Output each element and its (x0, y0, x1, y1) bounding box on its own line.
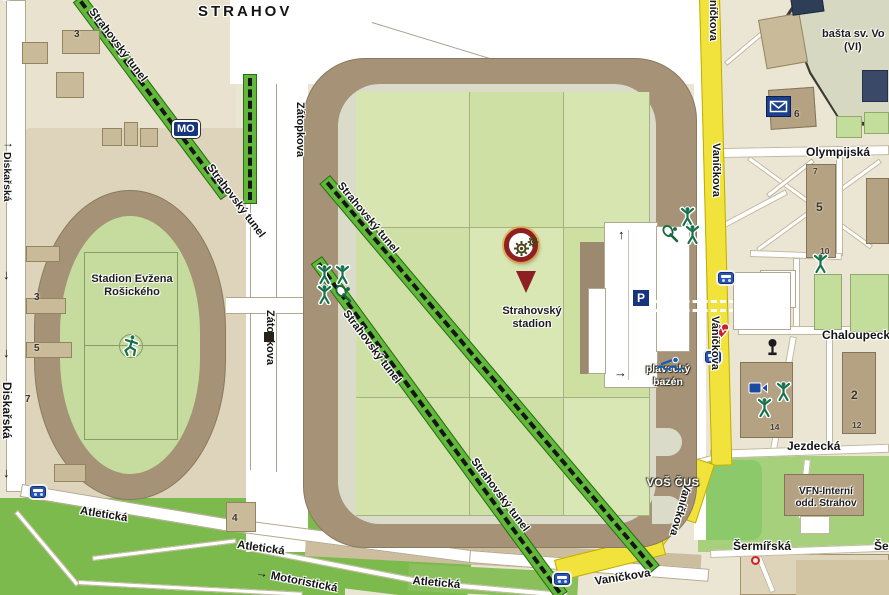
map-canvas[interactable]: MO P ↑ → → ↓ ↓ ↓ → STRAHOV Strahovský tu… (0, 0, 889, 595)
east-band-notch-1 (652, 428, 682, 456)
building-nw-4 (102, 128, 122, 146)
oneway-arrow-diskarska-top: → (2, 137, 14, 149)
zatopkova-border-e (276, 84, 277, 472)
gymnast-icon-3[interactable] (316, 284, 333, 305)
building-bottom-right (796, 560, 889, 595)
lot-green-2 (864, 112, 889, 134)
building-nw-2 (22, 42, 48, 64)
gymnast-icon-1[interactable] (316, 264, 333, 285)
number-7-east: 7 (813, 166, 818, 176)
pin-tip (516, 271, 536, 293)
tennis-icon-2[interactable] (661, 224, 680, 243)
chaloupeckeho-label: Chaloupecke (822, 328, 889, 342)
infield-r1c2 (470, 92, 564, 228)
number-3-west: 3 (34, 292, 40, 303)
vos-cus-label: VOŠ ČUS (643, 477, 703, 489)
oneway-arrow-diskarska-3: ↓ (3, 466, 10, 479)
number-4-corner: 4 (232, 513, 238, 524)
bastion-label: bašta sv. Vo (VI) (822, 28, 889, 54)
number-2: 2 (851, 388, 858, 402)
building-nw-3 (56, 72, 84, 98)
building-nw-1 (62, 30, 100, 54)
zatopkova-label-top: Zátopkova (294, 102, 306, 157)
road-l-vfn (800, 516, 830, 534)
gear-icon-small (527, 235, 539, 253)
route-point-icon[interactable] (751, 556, 760, 565)
number-5-west: 5 (34, 343, 40, 354)
building-e-1 (866, 178, 889, 244)
number-5-east: 5 (816, 200, 823, 214)
west-annex-2 (26, 298, 66, 314)
east-stand-wing-l (588, 288, 606, 374)
right-arrow-icon: → (614, 366, 627, 379)
swimmer-icon[interactable] (657, 354, 684, 373)
west-annex-4 (54, 464, 86, 482)
camera-icon[interactable] (748, 381, 769, 395)
landmark-icon[interactable] (264, 332, 274, 342)
vfn-label: VFN-Interní odd. Strahov (792, 486, 860, 510)
building-nw-6 (140, 128, 158, 147)
vfn-line1: VFN-Interní (799, 486, 853, 497)
road-v-3 (826, 336, 833, 454)
building-white-station (733, 272, 791, 330)
bazen-line2: bazén (640, 376, 696, 388)
building-corner-4 (226, 502, 256, 532)
infield-r1c1 (356, 92, 470, 228)
lot-chaloupeckeho-1 (814, 274, 842, 330)
bus-stop-icon-vanickova-b[interactable] (554, 573, 570, 585)
vanickova-label-2: Vaníčkova (710, 143, 722, 197)
tunnel-portal-sign: MO (172, 120, 200, 138)
strahov-line1: Strahovský (502, 305, 561, 317)
number-14: 14 (770, 422, 779, 432)
tennis-icon-1[interactable] (334, 284, 353, 303)
oneway-arrow-motoristicka: → (255, 566, 269, 580)
vanickova-label-3: Vaníčkova (709, 316, 721, 370)
building-ne-leaning (758, 13, 808, 70)
olympijska-label: Olympijská (806, 145, 870, 159)
infield-r2c1 (356, 228, 470, 398)
diskarska-label-mid: Diskařská (1, 152, 13, 202)
post-office-icon[interactable] (766, 96, 791, 117)
gymnast-icon-8[interactable] (756, 397, 773, 418)
gymnast-icon-2[interactable] (334, 264, 351, 285)
rosicky-stadium-label: Stadion Evžena Rošického (80, 273, 184, 299)
number-7-west: 7 (25, 394, 31, 405)
lot-chaloupeckeho-2 (850, 274, 889, 332)
oneway-arrow-diskarska-1: ↓ (3, 268, 10, 281)
east-stand-line (628, 230, 629, 380)
diskarska-label-low: Diskařská (0, 382, 14, 439)
oneway-arrow-diskarska-2: ↓ (3, 346, 10, 359)
up-arrow-icon: ↑ (618, 228, 625, 241)
strahov-line2: stadion (512, 318, 551, 330)
number-10: 10 (820, 246, 829, 256)
number-6: 6 (794, 109, 800, 120)
bus-stop-icon-atleticka[interactable] (30, 486, 46, 498)
infield-r3c3 (564, 398, 650, 516)
road-v-1 (836, 156, 843, 256)
road-conn-2 (720, 189, 788, 229)
sermirska-label: Šermířská (733, 539, 791, 553)
poi-marker-pin[interactable] (501, 226, 557, 296)
number-3-topleft: 3 (74, 29, 80, 40)
jezdecka-label: Jezdecká (787, 439, 840, 453)
rosicky-line1: Stadion Evžena (91, 273, 172, 285)
bastion-line1: bašta sv. Vo (822, 28, 885, 40)
west-annex-1 (26, 246, 60, 262)
monument-icon[interactable] (766, 338, 779, 357)
gymnast-icon-6[interactable] (812, 253, 829, 274)
parking-sign[interactable]: P (633, 290, 649, 306)
gymnast-icon-5[interactable] (684, 224, 701, 245)
strahov-stadium-label: Strahovský stadion (494, 305, 570, 331)
vanickova-label-1: Vaníčkova (707, 0, 719, 41)
vfn-line2: odd. Strahov (795, 498, 856, 509)
building-navy-2 (862, 70, 888, 102)
bus-stop-icon-vanickova-n[interactable] (718, 272, 734, 284)
west-annex-3 (26, 342, 72, 358)
lot-green-1 (836, 116, 862, 138)
tunnel-stub-zatopkova (243, 74, 257, 204)
district-label: STRAHOV (198, 3, 292, 20)
runner-icon[interactable] (120, 334, 141, 357)
building-nw-5 (124, 122, 138, 146)
infield-r1c3 (564, 92, 650, 228)
gymnast-icon-7[interactable] (775, 381, 792, 402)
rosicky-line2: Rošického (104, 286, 160, 298)
number-12: 12 (852, 420, 861, 430)
sermirska-label-east: Šermířská (874, 539, 889, 553)
bastion-line2: (VI) (822, 41, 862, 53)
